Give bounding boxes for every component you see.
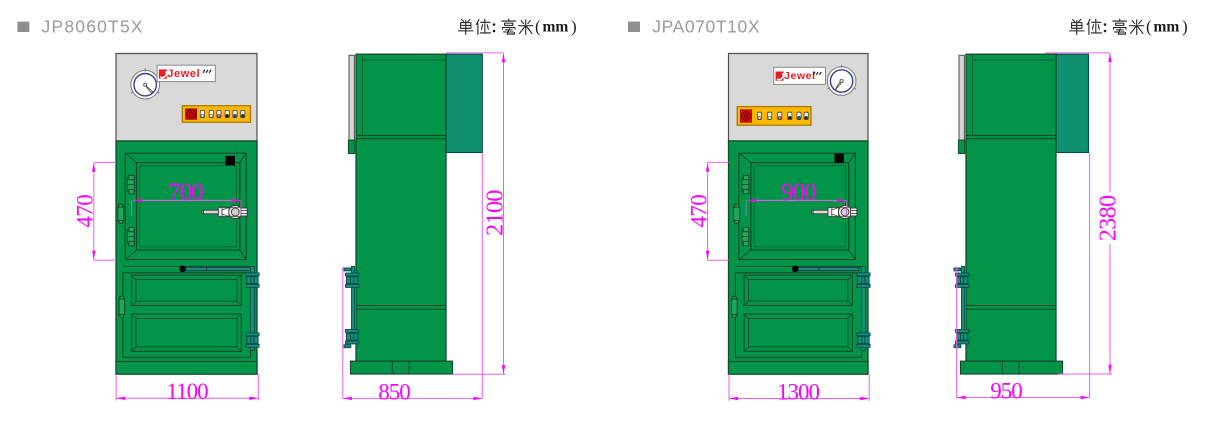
svg-text:1100: 1100	[166, 379, 208, 404]
svg-text:2380: 2380	[1096, 195, 1122, 241]
svg-text:Jewel: Jewel	[167, 68, 200, 80]
svg-text:850: 850	[378, 379, 410, 404]
svg-text:(: (	[535, 17, 541, 36]
svg-text:900: 900	[781, 179, 816, 206]
svg-text:JPA070T10X: JPA070T10X	[652, 17, 760, 37]
svg-text:950: 950	[990, 378, 1022, 403]
svg-text:): )	[1182, 17, 1188, 36]
svg-text:mm: mm	[543, 19, 569, 36]
svg-text:1300: 1300	[777, 379, 820, 404]
svg-text:(: (	[1146, 17, 1152, 36]
svg-text:470: 470	[73, 195, 98, 228]
svg-text:470: 470	[686, 195, 711, 228]
svg-text:): )	[571, 17, 577, 36]
svg-text:2100: 2100	[483, 190, 509, 236]
svg-text:mm: mm	[1154, 19, 1180, 36]
svg-text:Jewel: Jewel	[784, 70, 816, 82]
svg-text:700: 700	[168, 179, 203, 206]
svg-text:JP8060T5X: JP8060T5X	[42, 17, 144, 37]
